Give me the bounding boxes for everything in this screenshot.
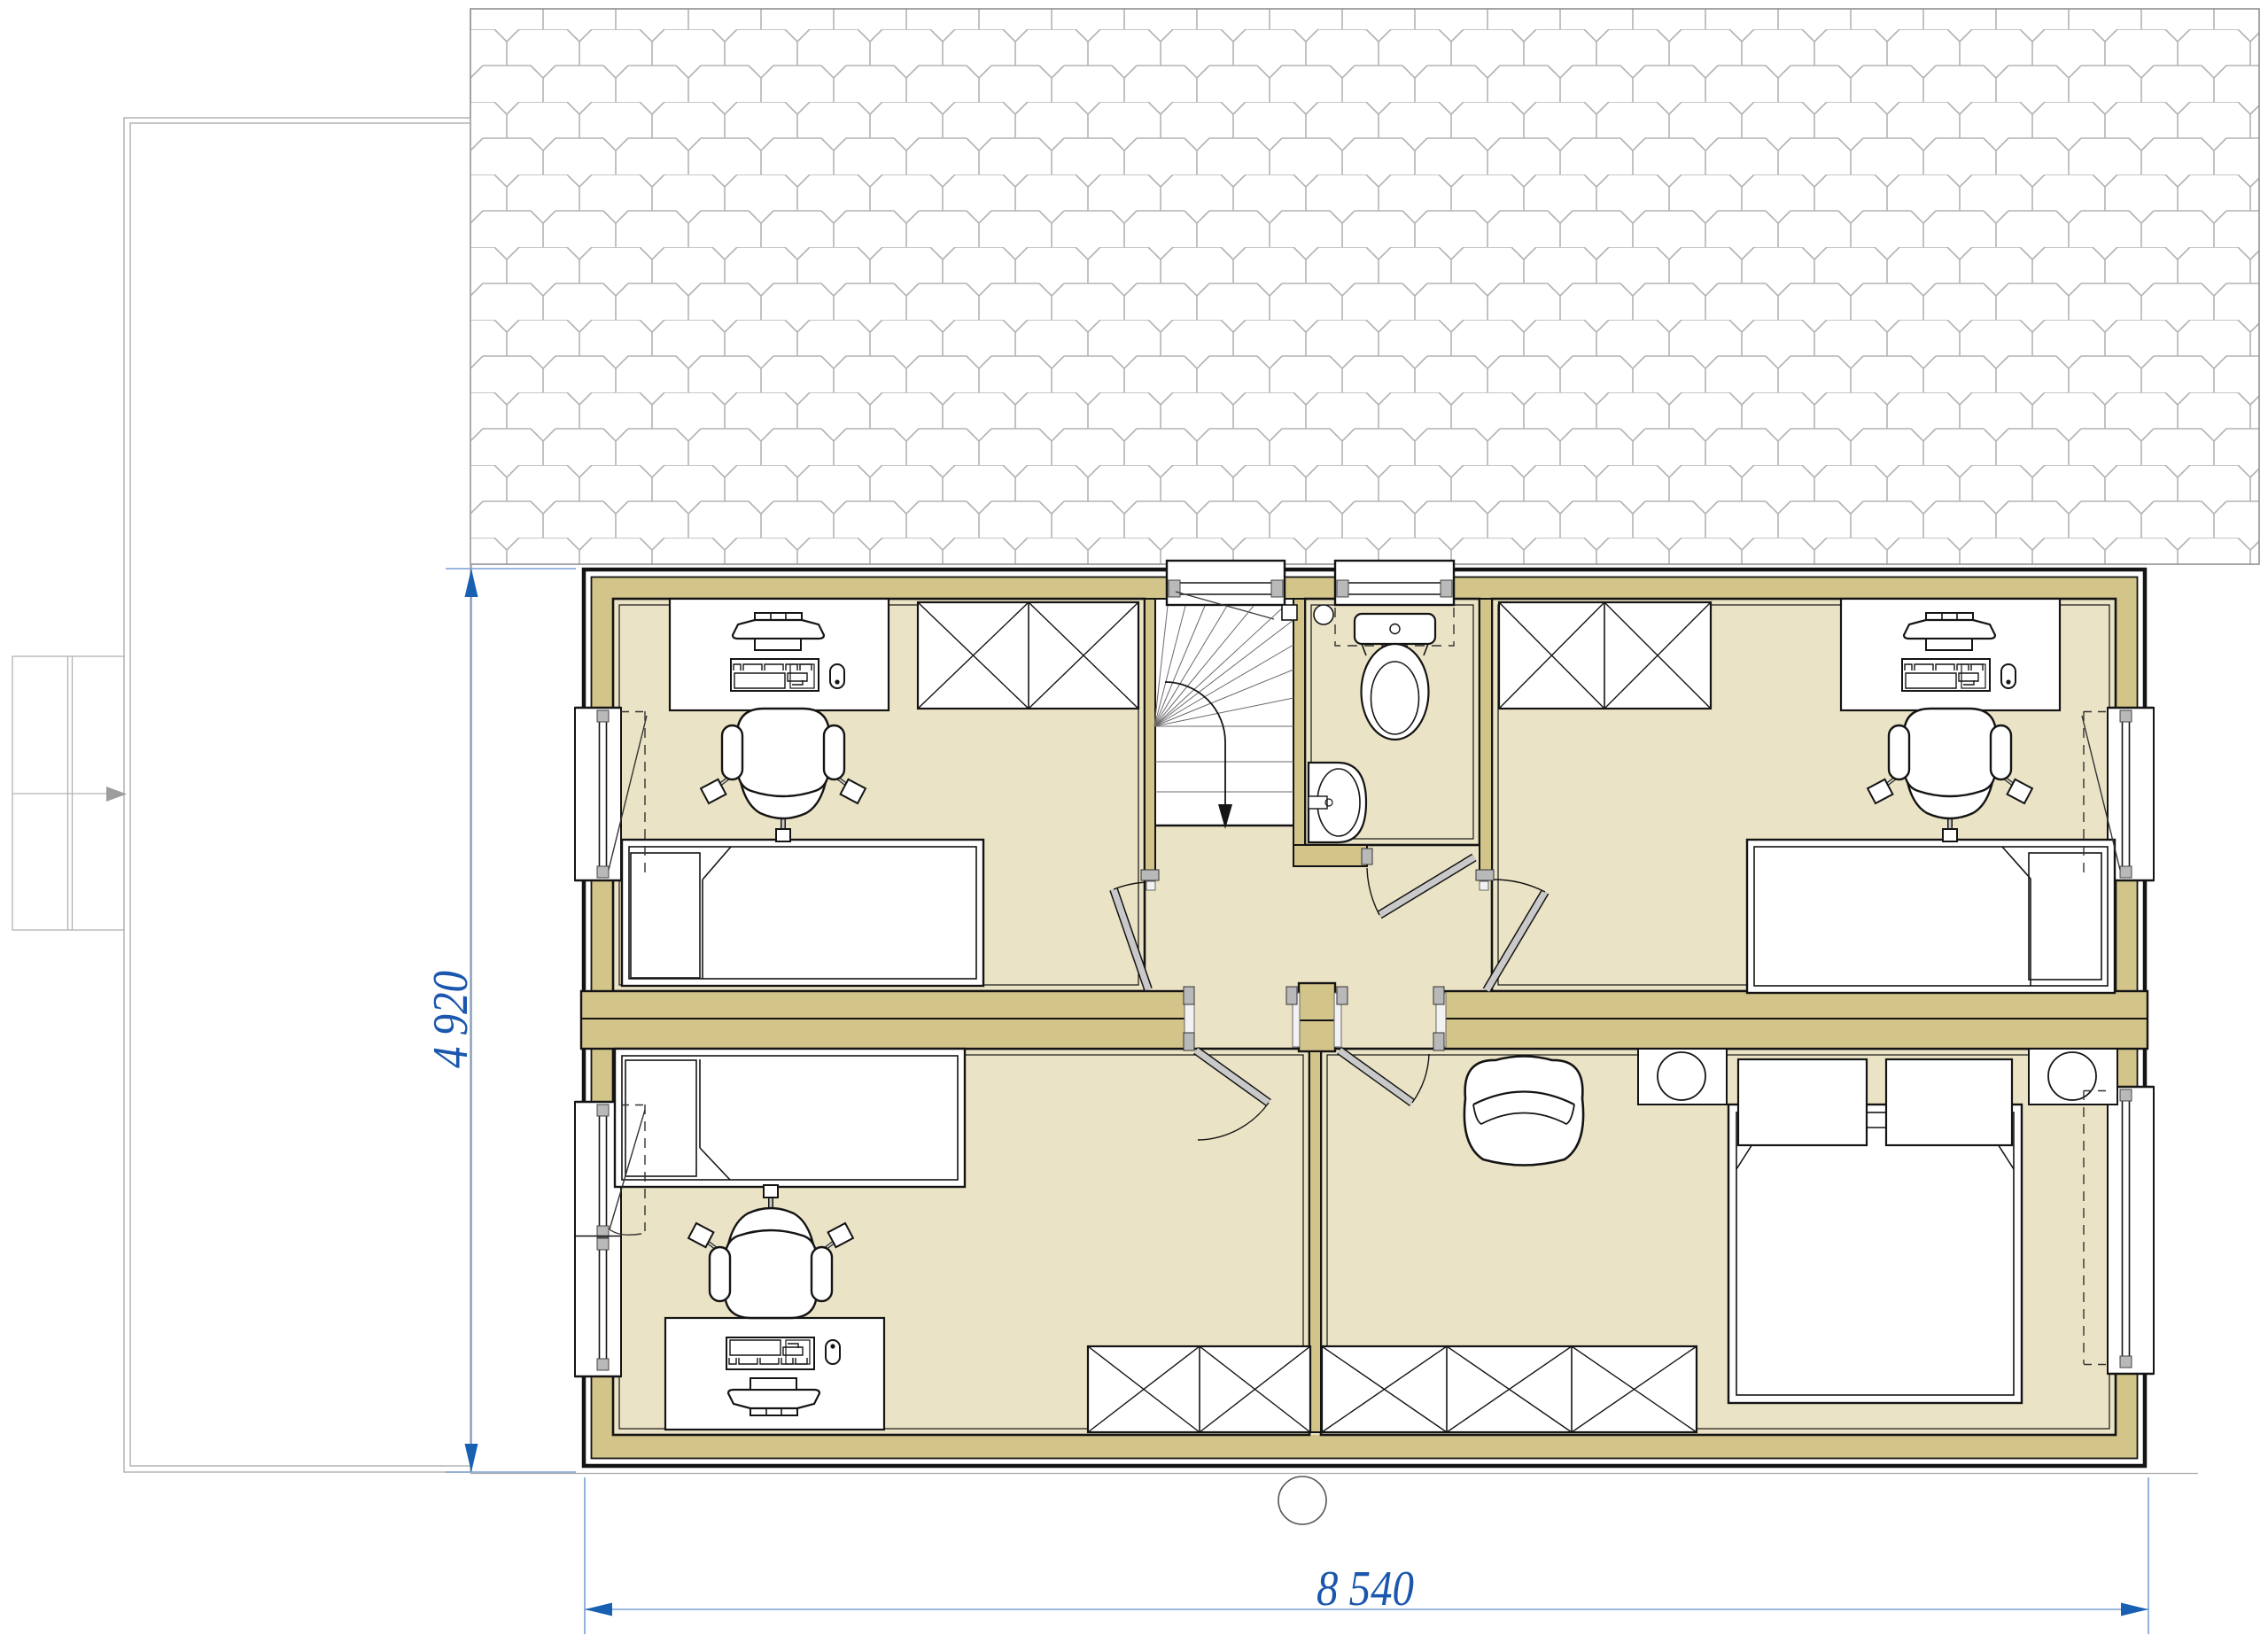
svg-text:4 920: 4 920 <box>423 971 478 1068</box>
svg-text:8 540: 8 540 <box>1317 1562 1414 1616</box>
